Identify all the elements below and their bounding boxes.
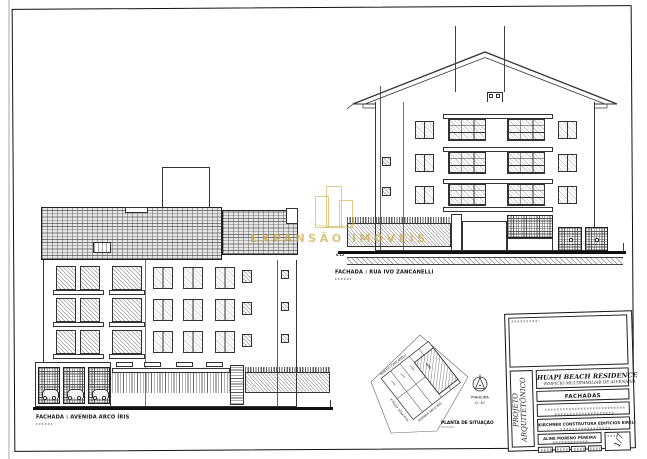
window-pair [183,299,203,321]
balcony-slab [109,322,145,327]
small-window [242,302,252,315]
ground-line [338,251,626,254]
meta-mini-box [538,446,553,452]
right-facade-scale-note [335,278,351,280]
meta-mini-box [554,446,569,452]
balcony-window [80,298,100,322]
meta-mini-content [557,448,568,451]
block-ref-label: Q : A7 [475,401,485,405]
entry-door [451,214,462,251]
architectural-sheet-page: { "watermark": { "text": "EXPANSÃO IMÓVE… [0,0,647,459]
gate-knob [569,238,573,242]
window-pair [153,299,173,321]
balcony-slab [53,290,104,295]
annex-window [281,302,289,311]
balcony-glazing [507,152,545,174]
balcony-glazing [448,119,486,141]
car-wheel [77,396,81,400]
meta-mini-content [590,447,600,450]
attic-vent-square [496,94,500,98]
annex-window [281,334,289,343]
gate-knob [595,238,599,242]
ground-line [33,407,333,410]
right-facade-label: FACHADA : RUA IVO ZANCANELLI [335,269,434,275]
city-block: RUA IVO ZANCANELLI AVENIDA ARCO ÍRIS RUA… [372,337,464,429]
fence-railing [112,373,230,393]
window-pair [153,267,173,289]
stair-section [230,365,244,405]
meta-mini-content [540,449,551,452]
small-window [242,270,252,283]
wing-window [382,187,391,196]
ground-dim-note: 0.12 [336,253,344,257]
window-pair [415,121,434,139]
fence-post-cap [116,362,133,367]
balcony-glazing [448,152,486,174]
roof-end-box [286,208,298,224]
signature-box-label [511,320,539,323]
sheet-number: 1/7 [613,433,626,449]
scan-edge-artifact [8,0,10,459]
project-title-box: HUAPI BEACH RESIDENCE EDIFÍCIO MULTIFAMI… [536,367,629,389]
site-plan: RUA IVO ZANCANELLI AVENIDA ARCO ÍRIS RUA… [365,332,500,444]
project-subtitle: EDIFÍCIO MULTIFAMILIAR DE ALVENARIA [544,380,621,387]
meta-mini-box [587,445,602,451]
site-plan-scale-note [441,427,454,428]
ground-hatch-strip [347,257,623,265]
balcony-slab [53,322,104,327]
garage-base [507,238,553,251]
owner-box: KIRCHNER CONSTRUTORA EDIFÍCIOS EIRELI [537,416,630,432]
small-window [242,334,252,347]
balcony-slab [443,114,553,119]
balcony-window [56,266,76,290]
car-wheel [43,396,47,400]
meta-mini-box [571,445,586,451]
window-pair [558,121,577,139]
fence-post-cap [144,362,161,367]
annex-window [281,270,289,279]
roof-dormer [125,207,148,213]
balcony-glazing [507,184,545,206]
balcony-window [56,330,76,354]
balcony-window [56,298,76,322]
window-pair [415,154,434,172]
garage-door [38,367,60,404]
author-box: ALINE MORENO PEREIRA [537,432,601,445]
balcony-window [112,266,142,290]
ground-line-tick [330,400,331,407]
balcony-slab [109,354,145,359]
sheet-content-box: FACHADAS [536,388,629,402]
tiled-roof-left [41,207,222,260]
author-name: ALINE MORENO PEREIRA [540,435,599,441]
hedge-wall [347,223,451,247]
owner-name: KIRCHNER CONSTRUTORA EDIFÍCIOS EIRELI [539,420,629,427]
left-facade-drawing: FACHADA : AVENIDA ARCO ÍRIS [36,166,338,428]
window-pair [558,186,577,204]
left-facade-scale-note [36,423,52,425]
window-pair [215,267,235,289]
balcony-window [80,266,100,290]
balcony-window [80,330,100,354]
ground-line-tick [623,243,624,251]
car-wheel [93,396,97,400]
project-type-label: PROJETO ARQUITETÔNICO [511,371,536,449]
left-facade-label: FACHADA : AVENIDA ARCO ÍRIS [36,414,129,420]
site-plan-label: PLANTA DE SITUAÇÃO [441,419,494,426]
window-pair [153,331,173,353]
car-wheel [68,396,72,400]
address-box [537,401,630,417]
right-facade-drawing: 0.12 FACHADA : RUA IVO ZANCANELLI [335,24,637,282]
balcony-slab [109,290,145,295]
sheet-content-label: FACHADAS [537,392,628,401]
balcony-window [112,330,142,354]
fence-post-cap [176,362,193,367]
owner-subline [560,426,610,430]
garage-grid-door [507,215,553,238]
window-pair [215,299,235,321]
attic-vent-square [489,94,493,98]
fence-post-cap [206,362,223,367]
hedge-wall [245,372,330,393]
window-pair [183,331,203,353]
balcony-glazing [448,184,486,206]
car-wheel [52,396,56,400]
district-label: PINHEIRA [471,395,489,400]
window-pair [215,331,235,353]
balcony-slab [53,354,104,359]
roof-vent [93,242,111,253]
project-type-strip: PROJETO ARQUITETÔNICO [510,370,535,448]
sheet-number-box: 1/7 [604,431,631,450]
window-pair [415,186,434,204]
window-pair [183,267,203,289]
garage-door [88,367,110,404]
signature-box [508,314,628,367]
balcony-slab [443,147,553,152]
car-wheel [102,396,106,400]
address-line [555,411,615,415]
balcony-slab [443,207,553,212]
balcony-slab [443,179,553,184]
meta-mini-content [573,448,584,451]
side-gate [585,227,608,251]
title-block: PROJETO ARQUITETÔNICO HUAPI BEACH RESIDE… [504,310,636,452]
wing-window [382,157,391,166]
side-gate [558,227,582,251]
wall-segment [462,221,507,251]
garage-block [35,362,111,407]
balcony-window [112,298,142,322]
north-arrow-icon [473,375,487,392]
chimney [455,26,505,92]
author-subline [553,441,589,444]
garage-door [63,367,85,404]
window-pair [558,154,577,172]
balcony-glazing [507,119,545,141]
